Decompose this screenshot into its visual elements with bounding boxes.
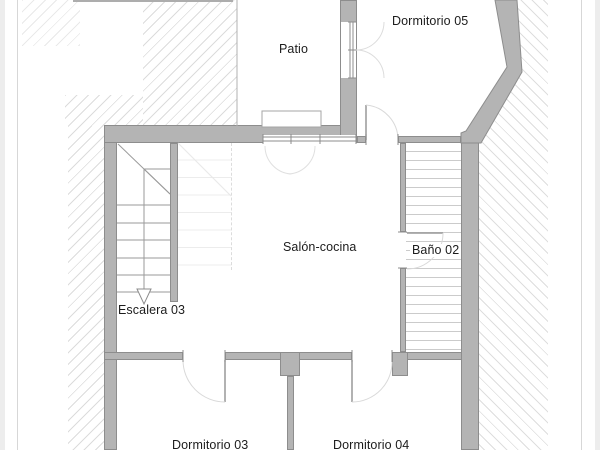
door-dormitorio-04 [352,350,392,402]
room-label-patio: Patio [279,43,308,56]
door-dormitorio-03 [183,350,225,402]
room-label-salon-cocina: Salón-cocina [283,241,356,254]
door-dormitorio-05 [366,105,398,145]
room-label-dormitorio-04: Dormitorio 04 [333,439,409,450]
room-label-escalera-03: Escalera 03 [118,304,185,317]
stair-treads [117,144,170,292]
room-label-bano-02: Baño 02 [410,244,461,257]
wall-angled-bay [461,0,522,143]
room-label-dormitorio-03: Dormitorio 03 [172,439,248,450]
patio-boundary-line [73,0,237,126]
floorplan-sheet: Patio Dormitorio 05 Salón-cocina Baño 02… [0,0,600,450]
plan-linework [0,0,600,450]
stair-void-diagonal [178,143,231,196]
window-patio-bottom [262,111,356,174]
window-patio-right [341,22,384,78]
stair-direction-arrow [137,289,151,304]
room-label-dormitorio-05: Dormitorio 05 [392,15,468,28]
